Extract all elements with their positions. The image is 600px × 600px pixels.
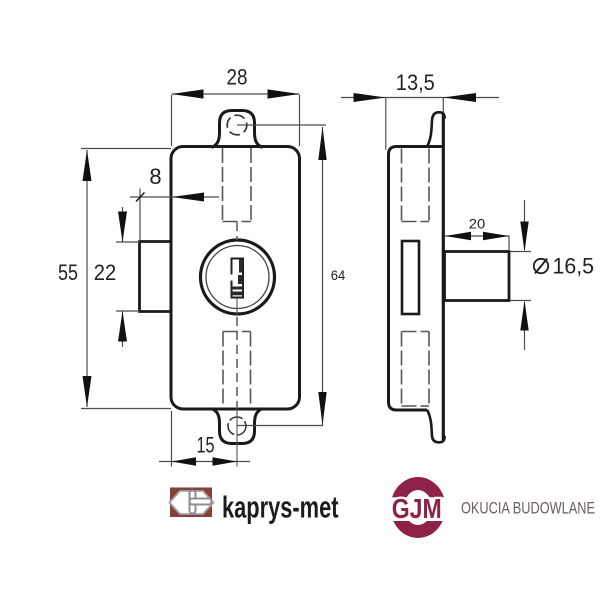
svg-text:64: 64 <box>331 267 346 283</box>
svg-text:16,5: 16,5 <box>553 254 595 279</box>
svg-text:GJM: GJM <box>392 493 442 524</box>
svg-text:kaprys-met: kaprys-met <box>222 490 339 525</box>
svg-text:OKUCIA BUDOWLANE: OKUCIA BUDOWLANE <box>461 500 595 518</box>
svg-text:55: 55 <box>58 260 78 285</box>
svg-text:15: 15 <box>197 433 215 458</box>
svg-text:20: 20 <box>469 216 486 232</box>
svg-text:28: 28 <box>227 65 248 90</box>
svg-text:22: 22 <box>94 260 117 285</box>
svg-text:13,5: 13,5 <box>396 70 435 95</box>
svg-text:8: 8 <box>149 164 161 189</box>
